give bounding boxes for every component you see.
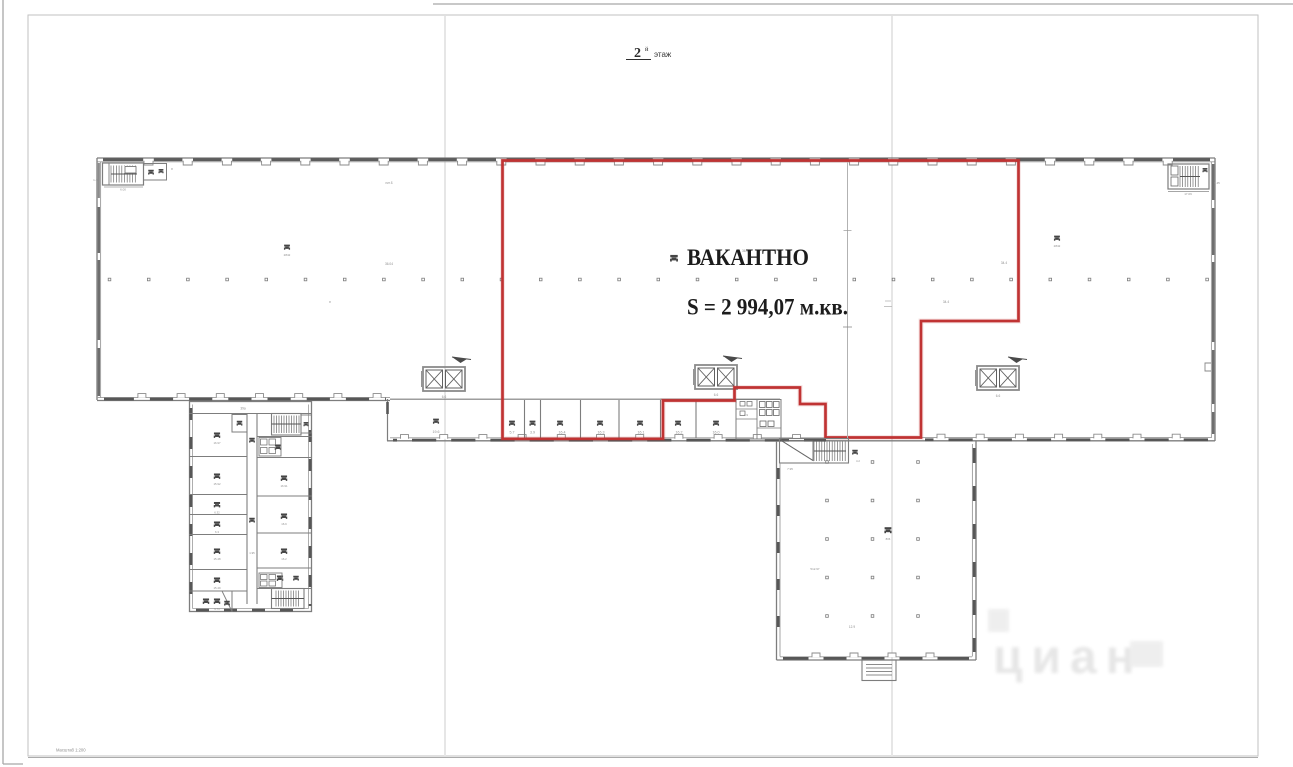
svg-text:Масштаб 1:200: Масштаб 1:200	[56, 748, 86, 753]
svg-text:4.2: 4.2	[856, 459, 860, 463]
svg-text:лит.Б: лит.Б	[385, 181, 393, 185]
svg-text:34.4: 34.4	[1001, 261, 1007, 265]
svg-text:1.44: 1.44	[93, 178, 99, 182]
svg-text:16.97: 16.97	[214, 441, 221, 445]
svg-text:этаж: этаж	[654, 50, 672, 59]
svg-text:16.4: 16.4	[559, 431, 566, 435]
svg-text:15.48: 15.48	[214, 557, 221, 561]
svg-text:16.0: 16.0	[713, 431, 720, 435]
svg-text:16.3: 16.3	[598, 431, 605, 435]
svg-text:15.92: 15.92	[214, 482, 221, 486]
svg-text:й: й	[645, 46, 649, 53]
svg-text:6.45: 6.45	[1214, 181, 1220, 185]
svg-text:16.91: 16.91	[281, 484, 288, 488]
svg-text:7.95: 7.95	[787, 467, 793, 471]
svg-text:16.9: 16.9	[281, 522, 287, 526]
svg-text:36.04: 36.04	[385, 262, 393, 266]
svg-text:15.49: 15.49	[214, 586, 221, 590]
svg-text:6.6: 6.6	[442, 395, 447, 399]
svg-text:19.6: 19.6	[433, 430, 440, 434]
svg-text:16.2: 16.2	[676, 431, 683, 435]
svg-text:ВАКАНТНО: ВАКАНТНО	[687, 245, 809, 270]
svg-text:16.2: 16.2	[281, 557, 287, 561]
svg-text:34.4: 34.4	[943, 300, 949, 304]
svg-text:S = 2 994,07 м.кв.: S = 2 994,07 м.кв.	[687, 295, 848, 320]
svg-text:6.3: 6.3	[215, 530, 219, 534]
svg-text:512.97: 512.97	[810, 567, 820, 571]
svg-text:2842: 2842	[284, 253, 291, 257]
svg-text:2842: 2842	[1054, 244, 1061, 248]
svg-text:6.6: 6.6	[714, 393, 719, 397]
svg-text:6.00: 6.00	[120, 188, 126, 192]
svg-text:5.7: 5.7	[510, 431, 515, 435]
svg-text:1.95: 1.95	[249, 551, 255, 555]
svg-text:2.9: 2.9	[744, 413, 749, 417]
svg-text:циан: циан	[993, 631, 1144, 684]
svg-text:6.6: 6.6	[996, 394, 1001, 398]
svg-text:3.9: 3.9	[530, 431, 535, 435]
svg-text:17.09: 17.09	[1184, 192, 1192, 196]
svg-text:16.1: 16.1	[638, 431, 645, 435]
svg-text:12.9: 12.9	[849, 625, 855, 629]
svg-text:806: 806	[886, 537, 891, 541]
svg-text:2: 2	[634, 46, 641, 61]
svg-text:39a: 39a	[240, 407, 246, 411]
svg-text:6.32: 6.32	[214, 511, 220, 515]
svg-text:9.73: 9.73	[214, 607, 220, 611]
